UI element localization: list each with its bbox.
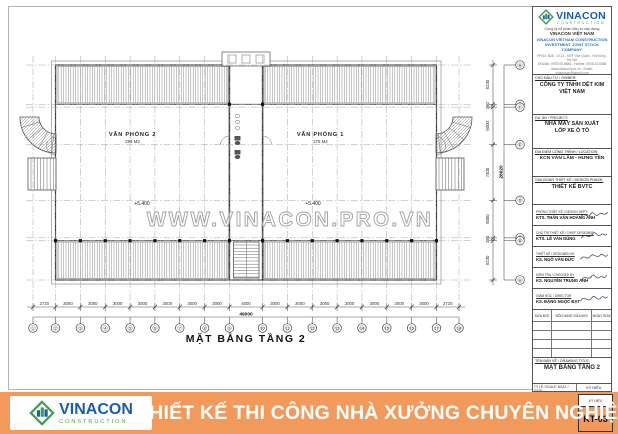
svg-text:12: 12 <box>310 327 314 331</box>
plan-title: MẶT BẰNG TẦNG 2 <box>128 333 364 345</box>
svg-text:380: 380 <box>485 235 490 243</box>
owner-name-line1: CÔNG TY TNHH DỆT KIM <box>535 82 609 89</box>
company-line2: VINACON VIỆT NAM <box>535 31 609 36</box>
company-web: www.vinacon.pro.vn - Email: vinaconvn@gm… <box>535 67 609 75</box>
svg-text:3000: 3000 <box>138 301 148 306</box>
svg-text:11: 11 <box>286 327 290 331</box>
room-name: VĂN PHÒNG 1 <box>258 132 383 138</box>
logo-name: VINACON <box>556 10 606 22</box>
signature-row: GIÁM ĐỐC / DIRECTOR KS. ĐẶNG NGỌC ĐẠT <box>533 289 611 310</box>
title-block: VINACON CONSTRUCTION Công ty cổ phần đầu… <box>532 6 612 392</box>
svg-text:8: 8 <box>204 327 206 331</box>
vinacon-logo-icon <box>29 400 55 426</box>
svg-text:16: 16 <box>410 327 414 331</box>
phase-section: GIAI ĐOẠN THIẾT KẾ / DESIGN PHASE: THIẾT… <box>533 177 611 205</box>
company-address: VPGD: B28 - LK13 - KĐT Văn Quán - Hà Đôn… <box>535 54 609 63</box>
signature-role: CHỦ TRÌ THIẾT KẾ / CHIEF DESIGNER <box>536 231 578 235</box>
signature-role: KIỂM TRA / CHECKED BY <box>536 273 578 277</box>
svg-text:18: 18 <box>457 327 461 331</box>
signature-row: KIỂM TRA / CHECKED BY KS. NGUYỄN TRUNG A… <box>533 268 611 289</box>
signature-scribble <box>578 291 609 307</box>
signature-role: PHÒNG THIẾT KẾ / DESIGN DEPT. <box>536 210 578 214</box>
svg-text:5230: 5230 <box>485 79 490 89</box>
project-label: DỰ ÁN / PROJECT: <box>535 116 609 120</box>
drawing-title-label: TÊN BẢN VẼ / DRAWING TITLE: <box>535 359 609 363</box>
watermark: WWW.VINACON.PRO.VN <box>62 208 518 232</box>
owner-section: CHỦ ĐẦU TƯ / OWNER: CÔNG TY TNHH DỆT KIM… <box>533 75 611 115</box>
wc-toilet <box>235 141 241 145</box>
svg-text:3000: 3000 <box>88 301 98 306</box>
room-label-van-phong-1: VĂN PHÒNG 1 275 M2 <box>258 132 383 144</box>
svg-text:14: 14 <box>360 327 364 331</box>
logo-tagline: CONSTRUCTION <box>556 21 606 25</box>
svg-text:7: 7 <box>179 327 181 331</box>
signature-role: THIẾT KẾ / DESIGNED BY <box>536 252 578 256</box>
location-value: KCN VĂN LÂM - HƯNG YÊN <box>535 156 609 162</box>
signature-scribble <box>578 270 609 286</box>
logo-tagline: CONSTRUCTION <box>59 419 133 425</box>
svg-text:3000: 3000 <box>370 301 380 306</box>
signature-name: KS. NGUYỄN TRUNG ANH <box>536 278 578 283</box>
louver-band-top-right <box>264 67 435 104</box>
svg-text:2720: 2720 <box>39 301 49 306</box>
svg-text:28620: 28620 <box>499 165 505 179</box>
wc-basin <box>235 126 240 130</box>
signature-role: GIÁM ĐỐC / DIRECTOR <box>536 294 578 298</box>
drawing-title-value: MẶT BẰNG TẦNG 2 <box>535 365 609 373</box>
signature-row: CHỦ TRÌ THIẾT KẾ / CHIEF DESIGNER KTS. L… <box>533 226 611 247</box>
signature-name: KTS. LÊ VĂN DŨNG <box>536 236 578 241</box>
owner-label: CHỦ ĐẦU TƯ / OWNER: <box>535 76 609 80</box>
signature-scribble <box>578 249 609 265</box>
signature-name: KS. NGÔ VĂN ĐỨC <box>536 257 578 262</box>
stair-right <box>436 158 464 190</box>
svg-text:3000: 3000 <box>113 301 123 306</box>
svg-text:3000: 3000 <box>320 301 330 306</box>
signature-name: KTS. THÂN VĂN HOÀNG ANH <box>536 215 578 220</box>
svg-text:380: 380 <box>485 102 490 110</box>
wc-basin <box>235 120 240 124</box>
svg-text:3000: 3000 <box>345 301 355 306</box>
svg-text:H: H <box>519 63 522 67</box>
svg-text:4: 4 <box>104 327 106 331</box>
wc-toilet <box>235 150 241 155</box>
floor-plan-area: 2720300030003000300030003000300040003000… <box>0 0 530 392</box>
svg-text:2720: 2720 <box>443 301 453 306</box>
project-name-line2: LỐP XE Ô TÔ <box>535 128 609 135</box>
svg-text:1: 1 <box>32 327 34 331</box>
svg-text:15: 15 <box>385 327 389 331</box>
logo-name: VINACON <box>59 402 133 418</box>
titleblock-bottom-strip: TỶ LỆ / SCALE: NGÀY / DATE: KÝ HIỆU <box>533 384 611 391</box>
bottom-banner: VINACON CONSTRUCTION THIẾT KẾ THI CÔNG N… <box>0 392 618 434</box>
company-panel: VINACON CONSTRUCTION Công ty cổ phần đầu… <box>533 7 611 75</box>
svg-text:13: 13 <box>335 327 339 331</box>
room-area: 275 M2 <box>258 139 383 144</box>
level-mark: +5.400 <box>112 201 172 207</box>
louver-band-top-left <box>57 67 228 104</box>
wc-toilet <box>235 155 241 159</box>
project-name-line1: NHÀ MÁY SẢN XUẤT <box>535 121 609 128</box>
owner-name-line2: VIỆT NAM <box>535 89 609 96</box>
stair-left <box>28 158 56 190</box>
svg-text:2: 2 <box>55 327 57 331</box>
svg-text:3000: 3000 <box>187 301 197 306</box>
revision-header: NGÀY SỬA <box>592 310 611 321</box>
signature-row: THIẾT KẾ / DESIGNED BY KS. NGÔ VĂN ĐỨC <box>533 247 611 268</box>
revision-header: SỬA ĐỔI <box>533 310 552 321</box>
svg-text:3000: 3000 <box>419 301 429 306</box>
door-swing <box>220 136 229 145</box>
svg-text:3000: 3000 <box>63 301 73 306</box>
room-label-van-phong-2: VĂN PHÒNG 2 259 M2 <box>70 132 195 144</box>
svg-text:3000: 3000 <box>270 301 280 306</box>
phase-label: GIAI ĐOẠN THIẾT KẾ / DESIGN PHASE: <box>535 178 609 182</box>
svg-text:10: 10 <box>261 327 265 331</box>
louver-band-bottom-right <box>264 242 435 279</box>
signature-name: KS. ĐẶNG NGỌC ĐẠT <box>536 299 578 304</box>
revision-header: NỘI DUNG SỬA ĐỔI <box>552 310 593 321</box>
canopy <box>222 52 270 66</box>
signature-row: PHÒNG THIẾT KẾ / DESIGN DEPT. KTS. THÂN … <box>533 205 611 226</box>
svg-text:17: 17 <box>434 327 438 331</box>
banner-logo-box: VINACON CONSTRUCTION <box>10 396 152 430</box>
project-section: DỰ ÁN / PROJECT: NHÀ MÁY SẢN XUẤT LỐP XE… <box>533 115 611 149</box>
svg-text:3000: 3000 <box>212 301 222 306</box>
svg-text:5000: 5000 <box>485 121 490 131</box>
vinacon-logo-icon <box>538 9 554 25</box>
phase-value: THIẾT KẾ BVTC <box>535 184 609 191</box>
sheet-label: KÝ HIỆU <box>577 384 611 391</box>
drawing-title-section: TÊN BẢN VẼ / DRAWING TITLE: MẶT BẰNG TẦN… <box>533 358 611 384</box>
svg-text:7400: 7400 <box>485 167 490 177</box>
svg-text:D: D <box>519 199 522 203</box>
svg-text:3000: 3000 <box>295 301 305 306</box>
level-mark: +5.400 <box>283 201 343 207</box>
svg-text:5230: 5230 <box>485 255 490 265</box>
svg-text:4000: 4000 <box>241 301 251 306</box>
revision-table: SỬA ĐỔI NỘI DUNG SỬA ĐỔI NGÀY SỬA <box>533 310 611 358</box>
svg-text:9: 9 <box>228 327 230 331</box>
svg-text:49000: 49000 <box>239 312 253 318</box>
room-name: VĂN PHÒNG 2 <box>70 132 195 138</box>
svg-text:6: 6 <box>154 327 156 331</box>
svg-text:3000: 3000 <box>394 301 404 306</box>
svg-text:3: 3 <box>79 327 81 331</box>
signature-scribble <box>578 207 609 223</box>
location-section: ĐỊA ĐIỂM CÔNG TRÌNH / LOCATION: KCN VĂN … <box>533 149 611 177</box>
room-area: 259 M2 <box>70 139 195 144</box>
wc-basin <box>235 114 240 118</box>
location-label: ĐỊA ĐIỂM CÔNG TRÌNH / LOCATION: <box>535 150 609 154</box>
svg-text:5: 5 <box>129 327 131 331</box>
banner-slogan: THIẾT KẾ THI CÔNG NHÀ XƯỞNG CHUYÊN NGHIỆ… <box>150 392 618 434</box>
signature-scribble <box>578 228 609 244</box>
svg-text:3000: 3000 <box>163 301 173 306</box>
company-en2: INVESTMENT JOINT STOCK COMPANY <box>535 42 609 52</box>
louver-band-bottom-left <box>57 242 228 279</box>
wc-toilet <box>235 136 241 141</box>
